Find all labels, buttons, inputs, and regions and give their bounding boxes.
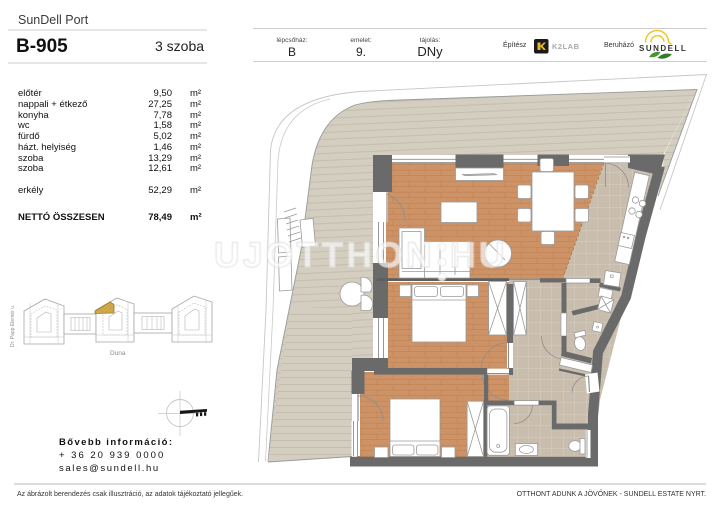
svg-text:m²: m²: [190, 185, 201, 196]
svg-text:nappali + étkező: nappali + étkező: [18, 99, 87, 110]
svg-text:m²: m²: [190, 212, 202, 223]
svg-text:NETTÓ ÖSSZESEN: NETTÓ ÖSSZESEN: [18, 211, 105, 223]
svg-text:emelet:: emelet:: [350, 37, 372, 44]
svg-text:házt. helyiség: házt. helyiség: [18, 142, 76, 153]
svg-text:OTTHONT ADUNK A JÖVŐNEK - SUND: OTTHONT ADUNK A JÖVŐNEK - SUNDELL ESTATE…: [517, 489, 706, 498]
svg-text:m²: m²: [190, 163, 201, 174]
svg-text:3 szoba: 3 szoba: [155, 38, 204, 54]
svg-text:sales@sundell.hu: sales@sundell.hu: [59, 463, 160, 474]
svg-text:Bővebb információ:: Bővebb információ:: [59, 437, 173, 448]
svg-text:B-905: B-905: [16, 36, 68, 57]
svg-text:Dr. Papp Elemér u.: Dr. Papp Elemér u.: [10, 305, 16, 347]
svg-text:5,02: 5,02: [154, 131, 173, 142]
svg-text:m²: m²: [190, 142, 201, 153]
svg-text:+ 36 20 939 0000: + 36 20 939 0000: [59, 450, 165, 461]
svg-text:tájolás:: tájolás:: [420, 37, 441, 44]
svg-text:1,46: 1,46: [154, 142, 173, 153]
svg-text:9.: 9.: [356, 45, 366, 59]
svg-text:fürdő: fürdő: [18, 131, 40, 142]
svg-text:9,50: 9,50: [154, 88, 173, 99]
svg-text:Duna: Duna: [110, 350, 126, 357]
svg-text:m²: m²: [190, 131, 201, 142]
svg-text:m²: m²: [190, 88, 201, 99]
svg-text:UJOTTHON: UJOTTHON: [214, 235, 435, 275]
svg-text:DNy: DNy: [417, 44, 443, 59]
svg-text:B: B: [288, 45, 296, 59]
svg-text:szoba: szoba: [18, 163, 44, 174]
svg-text:52,29: 52,29: [148, 185, 172, 196]
svg-text:Az ábrázolt berendezés csak il: Az ábrázolt berendezés csak illusztráció…: [17, 491, 243, 498]
svg-text:12,61: 12,61: [148, 163, 172, 174]
svg-text:27,25: 27,25: [148, 99, 172, 110]
svg-text:m²: m²: [190, 120, 201, 131]
svg-text:78,49: 78,49: [148, 212, 172, 223]
svg-text:Beruházó: Beruházó: [604, 42, 634, 49]
svg-text:SunDell Port: SunDell Port: [18, 13, 89, 27]
svg-text:lépcsőház:: lépcsőház:: [276, 37, 307, 44]
svg-text:wc: wc: [17, 120, 30, 131]
svg-text:Építész: Építész: [503, 40, 527, 49]
svg-text:SUNDELL: SUNDELL: [639, 44, 687, 53]
svg-text:m²: m²: [190, 99, 201, 110]
svg-text:HU: HU: [450, 235, 508, 275]
svg-text:előtér: előtér: [18, 88, 42, 99]
svg-text:1,58: 1,58: [154, 120, 173, 131]
svg-text:erkély: erkély: [18, 185, 44, 196]
svg-text:K2LAB: K2LAB: [552, 42, 580, 51]
